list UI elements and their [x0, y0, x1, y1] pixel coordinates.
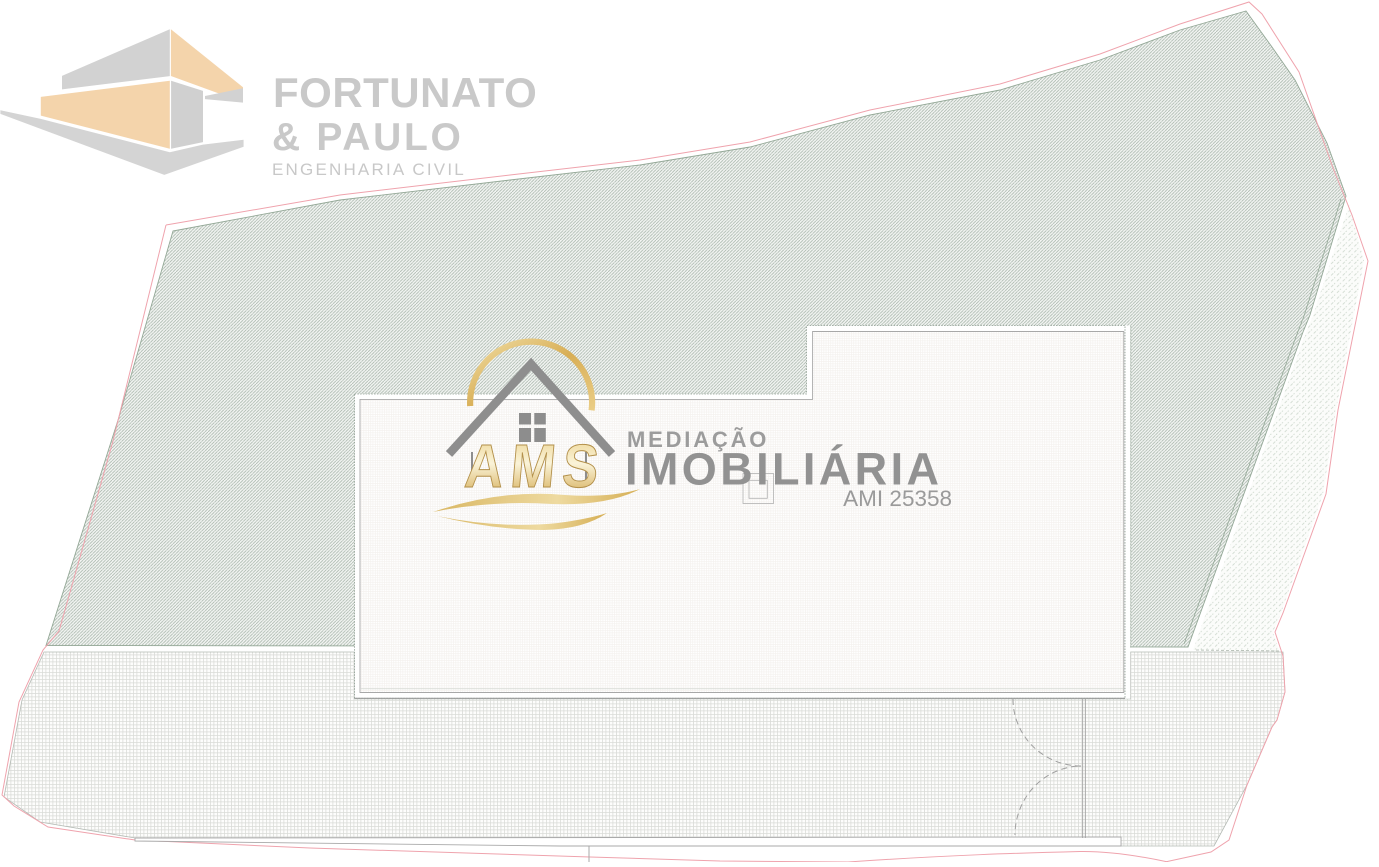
svg-text:AMS: AMS [462, 433, 608, 501]
svg-text:ENGENHARIA CIVIL: ENGENHARIA CIVIL [272, 160, 466, 179]
svg-text:FORTUNATO: FORTUNATO [273, 69, 537, 116]
svg-text:AMI 25358: AMI 25358 [843, 486, 952, 511]
svg-text:& PAULO: & PAULO [272, 116, 464, 159]
